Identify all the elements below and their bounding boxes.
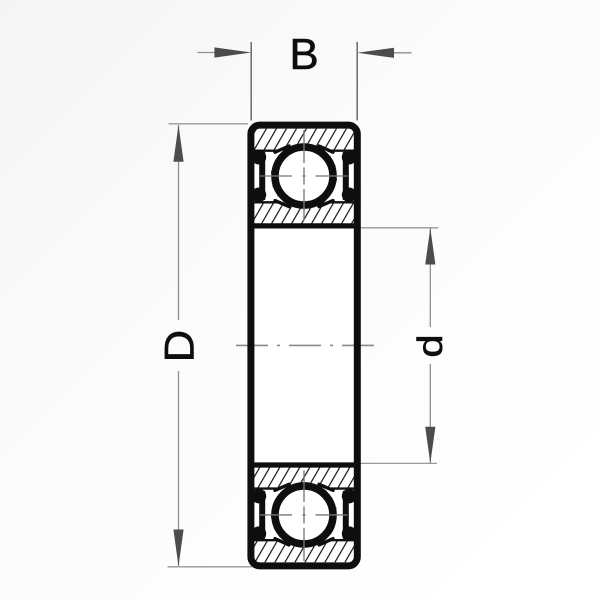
svg-text:D: D — [157, 330, 203, 363]
svg-text:B: B — [289, 30, 318, 79]
svg-text:d: d — [411, 334, 450, 357]
